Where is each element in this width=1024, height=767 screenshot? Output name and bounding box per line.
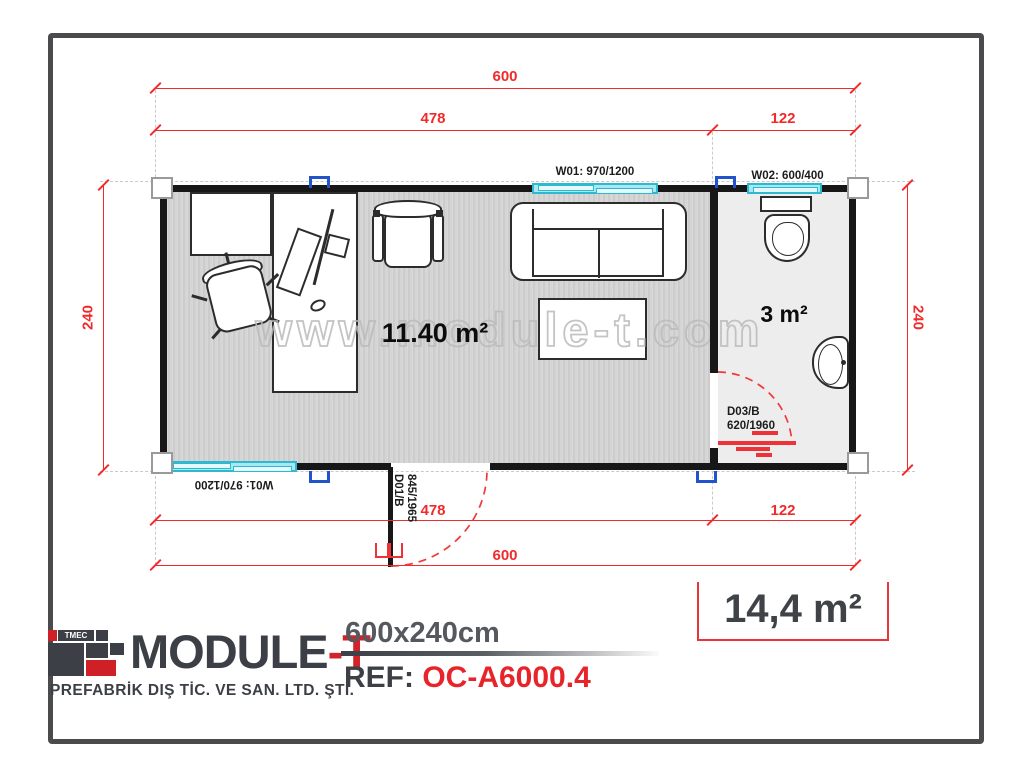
desk (272, 192, 358, 393)
dimension-line (712, 520, 855, 521)
toilet-cistern (760, 196, 812, 212)
corner-post (151, 452, 173, 474)
door-handle-symbol (375, 543, 403, 558)
window-w01-top (532, 183, 658, 194)
dimension-line (103, 185, 104, 470)
door-label-d01-code: D01/B (392, 474, 404, 507)
model-size-label: 600x240cm (345, 617, 500, 650)
door-label-d03-code: D03/B (727, 406, 760, 418)
module-connector-icon (309, 471, 330, 483)
ref-label: REF: (344, 661, 414, 694)
wall-bottom (490, 463, 856, 470)
module-connector-icon (715, 176, 736, 188)
wall-right (849, 190, 856, 466)
toilet (764, 214, 810, 262)
tmec-text: TMEC (58, 630, 94, 641)
office-area-label: 11.40 m² (370, 318, 500, 349)
dim-label-depth-left: 240 (80, 288, 97, 348)
dim-label-total-top: 600 (455, 68, 555, 85)
ref-row: REF: OC-A6000.4 (344, 661, 591, 695)
window-label-w01-top: W01: 970/1200 (532, 166, 658, 178)
corner-post (151, 177, 173, 199)
wall-left (160, 190, 167, 466)
extension-line (712, 132, 713, 184)
extension-line (855, 90, 856, 182)
dimension-line (155, 130, 712, 131)
dim-label-office-top: 478 (383, 110, 483, 127)
wall-top (167, 185, 532, 192)
partition-wall (710, 190, 718, 373)
dim-label-bath-top: 122 (733, 110, 833, 127)
dim-label-total-bottom: 600 (455, 547, 555, 564)
module-connector-icon (309, 176, 330, 188)
window-w01-bottom (167, 461, 297, 472)
floor-plan-page: www.module-t.com (0, 0, 1024, 767)
tmec-logo-icon: TMEC (48, 630, 126, 677)
module-connector-icon (696, 471, 717, 483)
dim-label-bath-bottom: 122 (733, 502, 833, 519)
footer-divider (341, 651, 659, 656)
dimension-line (155, 88, 855, 89)
dim-label-depth-right: 240 (910, 288, 927, 348)
door-label-d03-size: 620/1960 (727, 420, 775, 432)
extension-line (155, 90, 156, 182)
total-area-badge: 14,4 m² (697, 582, 889, 641)
corner-post (847, 452, 869, 474)
door-symbol-d03 (736, 447, 770, 451)
dimension-line (907, 185, 908, 470)
wall-bottom (297, 463, 391, 470)
door-symbol-d03 (756, 453, 772, 457)
brand-main: MODULE (130, 625, 328, 678)
brand-logo-text: MODULE-T (130, 624, 370, 679)
window-label-w01-bottom: W01: 970/1200 (176, 478, 292, 490)
door-leaf-d03 (718, 441, 796, 445)
door-label-d01-size: 845/1965 (405, 474, 417, 522)
corner-post (847, 177, 869, 199)
dimension-line (155, 520, 712, 521)
guest-chair (372, 198, 446, 278)
partition-wall-stub (710, 448, 718, 466)
ref-code: OC-A6000.4 (422, 661, 590, 694)
dimension-line (712, 130, 855, 131)
sofa (510, 202, 687, 281)
window-w02-top (747, 183, 822, 194)
company-subtitle: PREFABRİK DIŞ TİC. VE SAN. LTD. ŞTİ. (50, 682, 354, 700)
window-label-w02: W02: 600/400 (740, 170, 835, 182)
dimension-line (155, 565, 855, 566)
bathroom-area-label: 3 m² (744, 301, 824, 328)
